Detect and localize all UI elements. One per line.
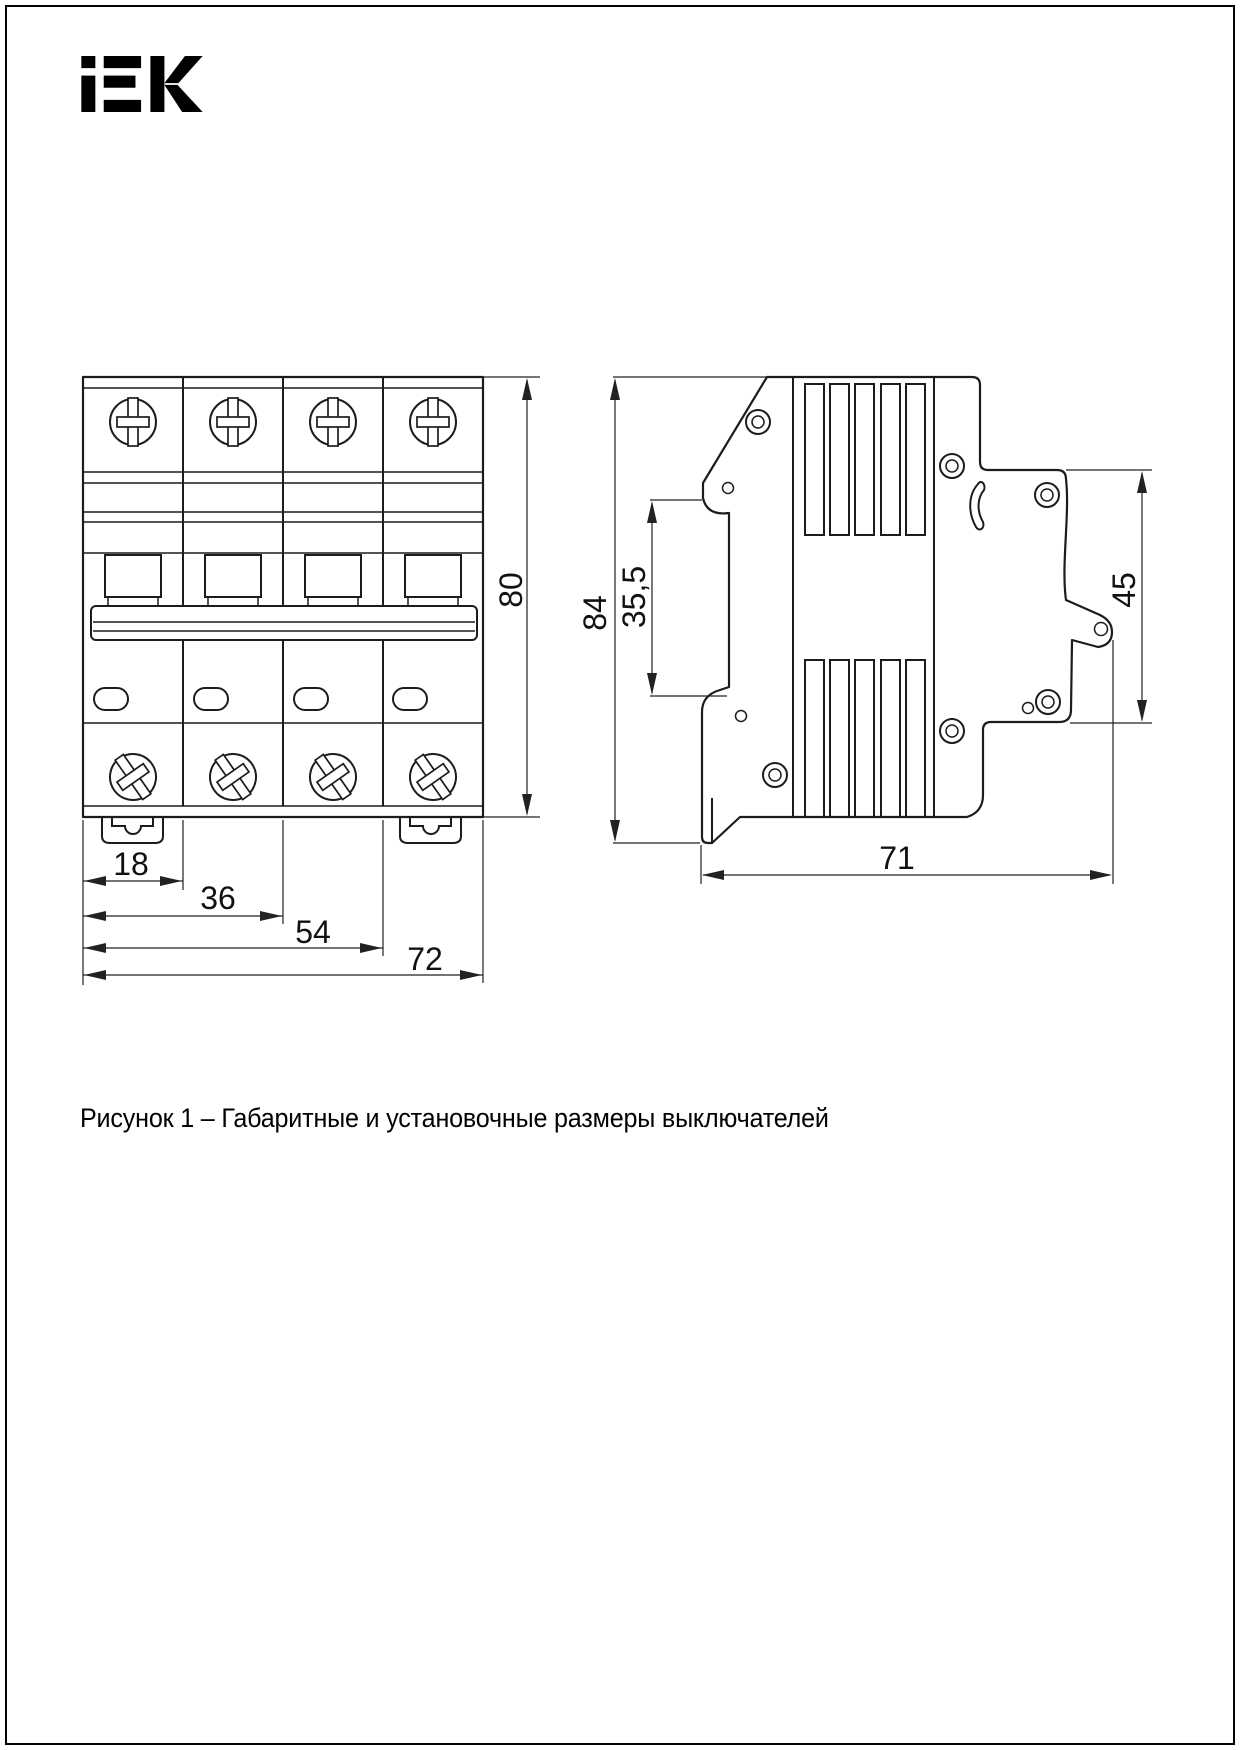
vent-slots-bottom (805, 660, 925, 817)
dim-two-poles: 36 (200, 880, 236, 916)
dim-three-poles: 54 (295, 914, 331, 950)
screw-icon (210, 398, 256, 446)
side-dimensions: 84 35,5 45 71 (577, 377, 1152, 884)
dim-total-width: 72 (407, 941, 443, 977)
screw-icon (310, 398, 356, 446)
small-holes (723, 483, 1108, 722)
screw-icon (400, 744, 465, 810)
pole-dividers (183, 377, 383, 806)
dim-front-face-height: 45 (1106, 572, 1142, 608)
screw-icon (200, 744, 265, 810)
front-dimensions: 80 18 36 54 72 (83, 377, 540, 985)
handle-tie-bar (91, 606, 477, 640)
screw-icon (110, 398, 156, 446)
document-page: iEK (0, 0, 1240, 1750)
dim-side-height: 84 (577, 595, 613, 631)
dim-rail-notch: 35,5 (616, 566, 652, 628)
screw-icon (300, 744, 365, 810)
din-clips-front (102, 818, 461, 843)
dimension-drawing: 80 18 36 54 72 (0, 0, 1240, 1000)
front-view: 80 18 36 54 72 (83, 377, 540, 985)
figure-caption: Рисунок 1 – Габаритные и установочные ра… (80, 1103, 829, 1133)
curved-slot (970, 482, 984, 530)
vent-slots-top (805, 384, 925, 535)
dim-front-height: 80 (493, 572, 529, 608)
indicator-windows (94, 688, 427, 710)
side-view: 84 35,5 45 71 (577, 377, 1152, 884)
screw-icon (410, 398, 456, 446)
dim-depth: 71 (879, 840, 915, 876)
screw-icon (100, 744, 165, 810)
dim-pole-width: 18 (113, 846, 149, 882)
